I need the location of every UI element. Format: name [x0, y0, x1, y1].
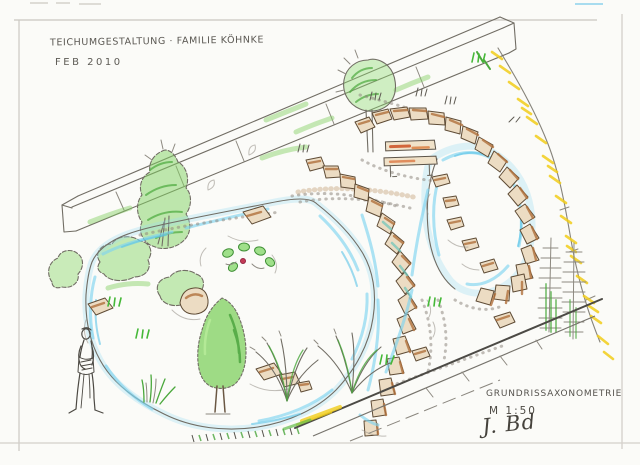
conical-tree — [198, 298, 246, 414]
water-lily — [221, 243, 276, 273]
stone-cascade — [306, 157, 417, 436]
right-pond — [425, 146, 532, 293]
page-frame — [0, 3, 640, 451]
person-figure — [69, 328, 103, 413]
drawing-caption: GRUNDRISSAXONOMETRIE — [486, 389, 622, 399]
reeds — [142, 375, 175, 404]
scanned-sketch-page: TEICHUMGESTALTUNG · FAMILIE KÖHNKE FEB 2… — [0, 0, 640, 465]
drawing-date: FEB 2010 — [55, 57, 123, 68]
